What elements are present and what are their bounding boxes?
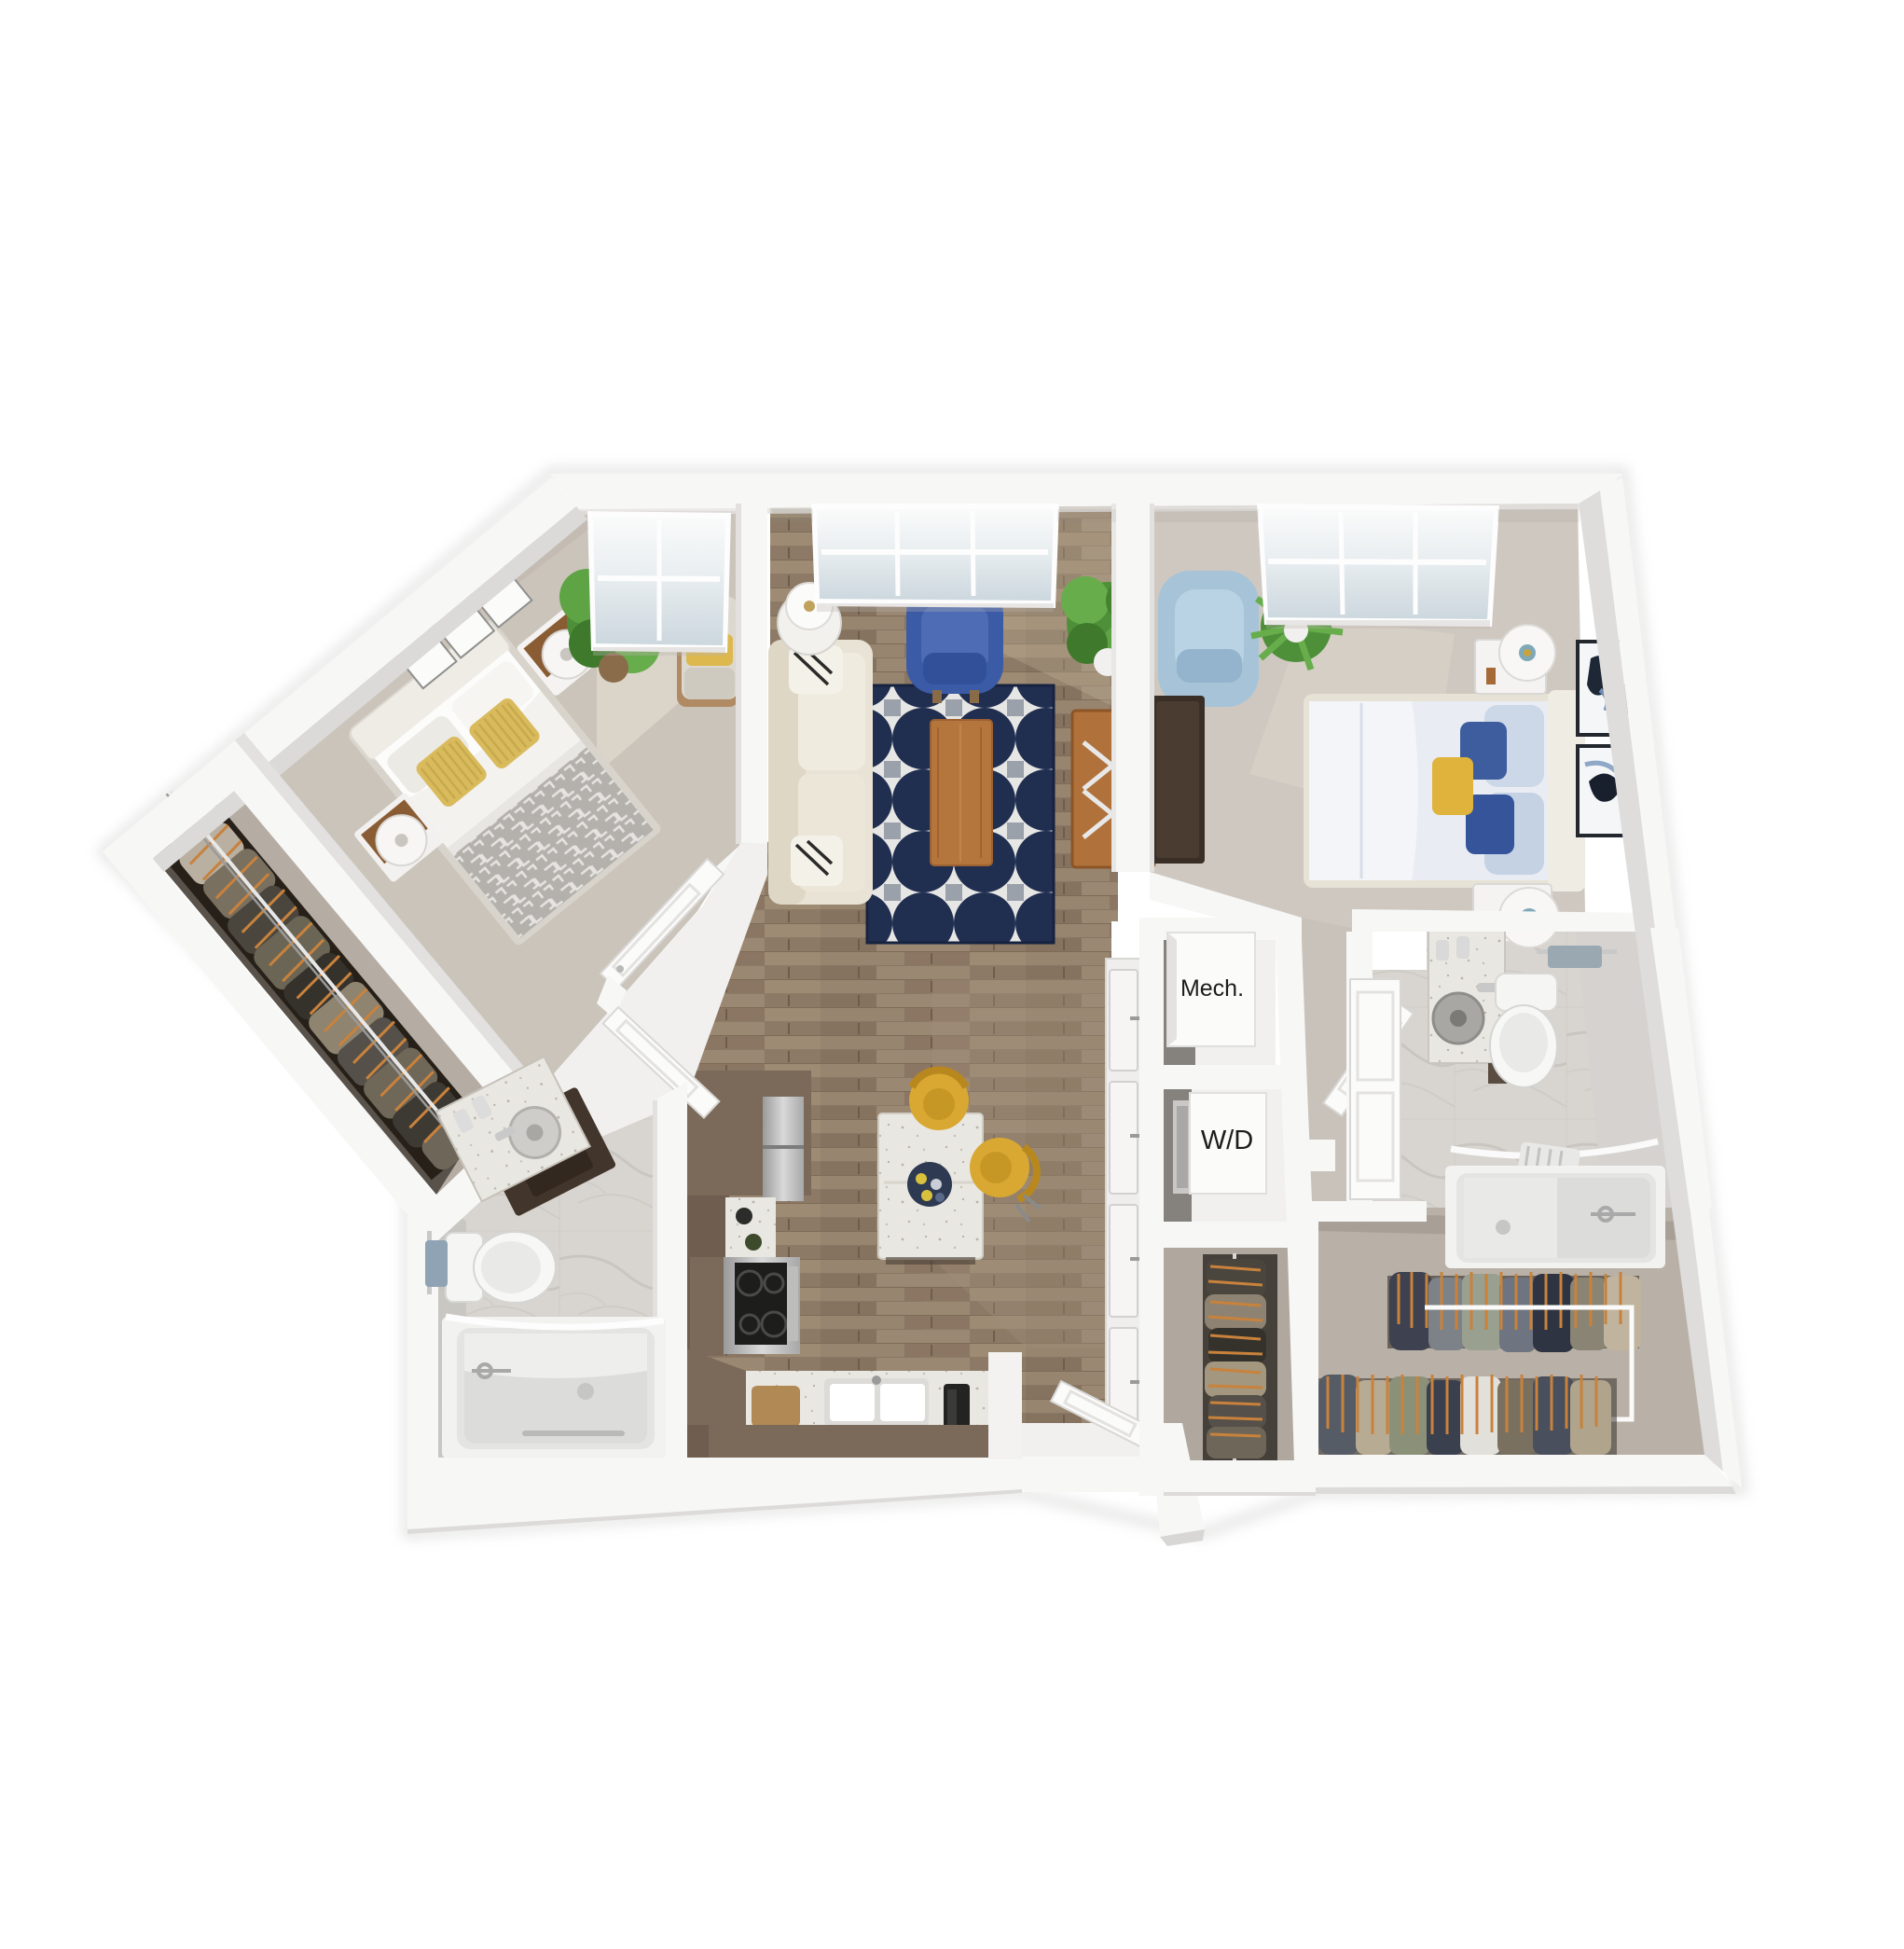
svg-text:Mech.: Mech.: [1180, 975, 1244, 1002]
svg-text:W/D: W/D: [1201, 1126, 1253, 1155]
